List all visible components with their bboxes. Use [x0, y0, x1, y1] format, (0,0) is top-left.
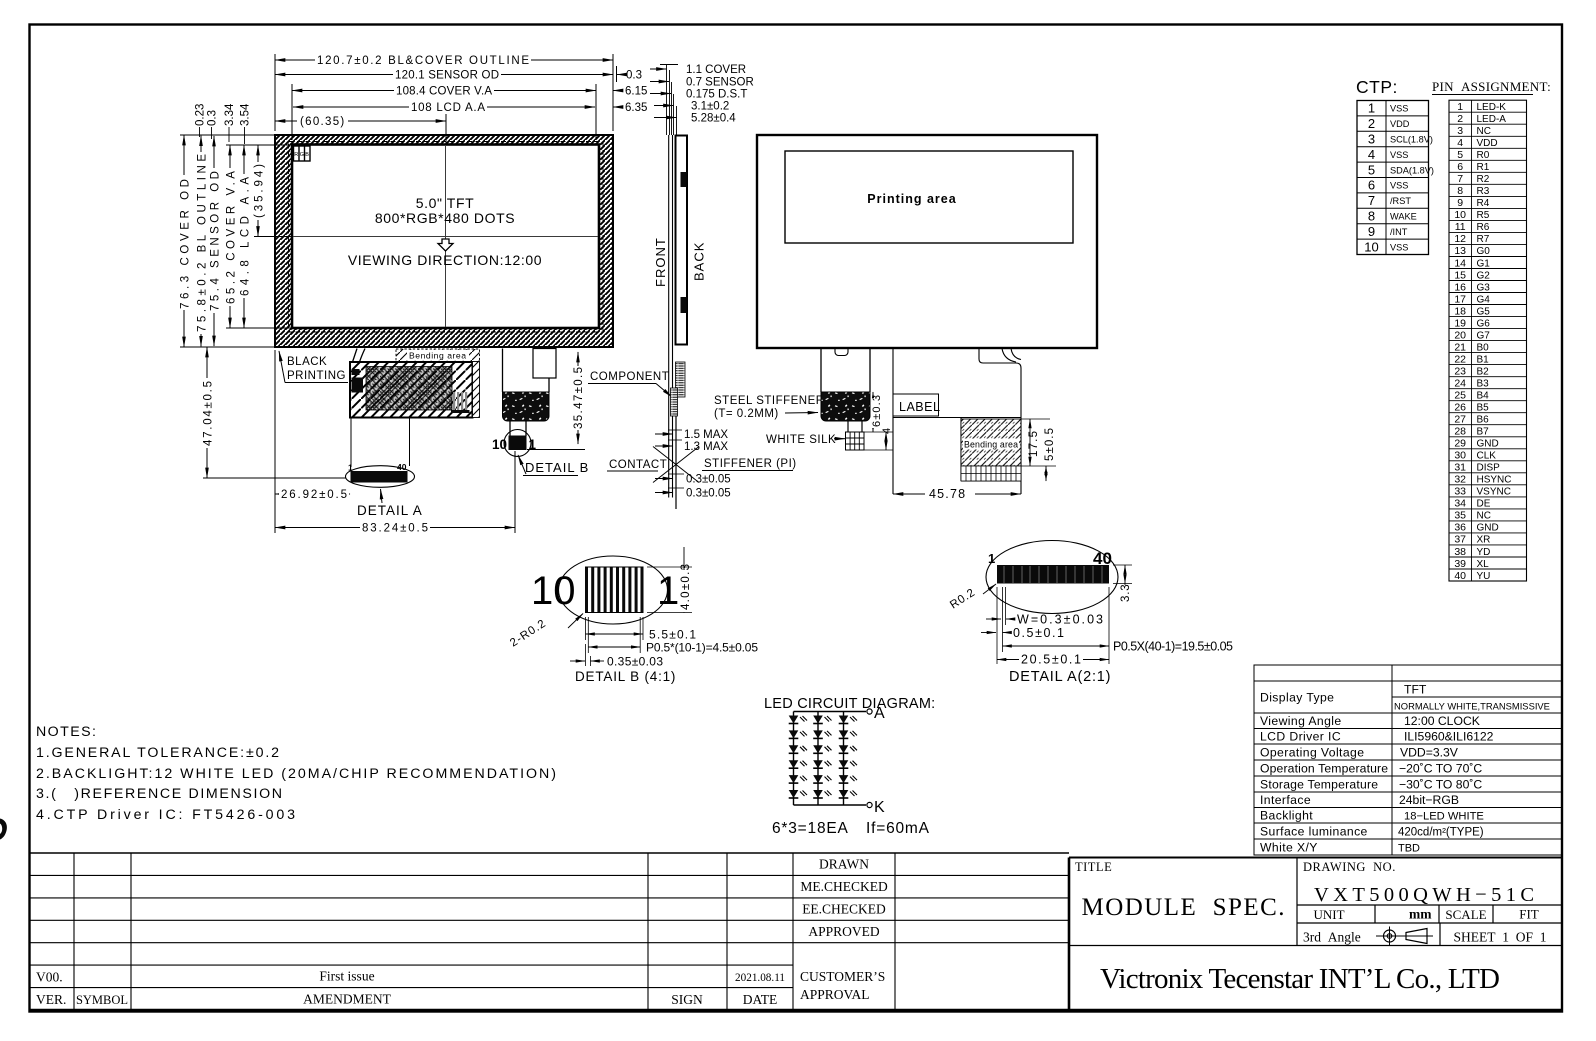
- svg-text:R1: R1: [1477, 162, 1490, 173]
- svg-text:Viewing Angle: Viewing Angle: [1260, 714, 1342, 728]
- svg-text:4.0±0.3: 4.0±0.3: [680, 564, 692, 610]
- svg-text:6*3=18EA: 6*3=18EA: [772, 820, 849, 837]
- svg-text:APPROVAL: APPROVAL: [800, 987, 870, 1002]
- svg-text:VSS: VSS: [1390, 242, 1408, 252]
- svg-text:17: 17: [1454, 293, 1466, 305]
- svg-text:6.35: 6.35: [625, 102, 647, 114]
- svg-text:NORMALLY WHITE,TRANSMISSIVE: NORMALLY WHITE,TRANSMISSIVE: [1394, 701, 1550, 712]
- svg-text:UNIT: UNIT: [1313, 907, 1344, 922]
- svg-text:20: 20: [1454, 329, 1466, 341]
- svg-text:33: 33: [1454, 486, 1466, 498]
- svg-text:83.24±0.5: 83.24±0.5: [362, 523, 428, 535]
- svg-text:(35.94): (35.94): [254, 164, 266, 218]
- svg-text:GND: GND: [1477, 523, 1499, 534]
- svg-text:1: 1: [657, 569, 679, 613]
- svg-text:CLK: CLK: [1477, 451, 1497, 462]
- svg-text:1.1 COVER: 1.1 COVER: [686, 64, 746, 76]
- svg-text:13: 13: [1454, 245, 1466, 257]
- svg-text:AMENDMENT: AMENDMENT: [303, 992, 391, 1007]
- svg-text:G5: G5: [1477, 306, 1491, 317]
- svg-text:R: R: [294, 152, 298, 158]
- svg-text:Victronix Tecenstar INT’L Co.,: Victronix Tecenstar INT’L Co., LTD: [1100, 963, 1500, 995]
- svg-text:24bit−RGB: 24bit−RGB: [1399, 793, 1459, 807]
- svg-text:R6: R6: [1477, 222, 1490, 233]
- svg-text:(T= 0.2MM): (T= 0.2MM): [714, 408, 779, 420]
- svg-text:ILI5960&ILI6122: ILI5960&ILI6122: [1404, 730, 1494, 744]
- svg-text:5.5±0.1: 5.5±0.1: [649, 628, 696, 642]
- svg-text:5: 5: [1368, 162, 1375, 177]
- svg-text:DETAIL B (4:1): DETAIL B (4:1): [575, 669, 676, 684]
- svg-text:35: 35: [1454, 510, 1466, 522]
- svg-text:5.0" TFT: 5.0" TFT: [416, 195, 475, 211]
- svg-text:YU: YU: [1477, 571, 1491, 582]
- svg-text:DETAIL A(2:1): DETAIL A(2:1): [1009, 669, 1111, 685]
- svg-text:2: 2: [1368, 116, 1375, 131]
- svg-text:P0.5X(40-1)=19.5±0.05: P0.5X(40-1)=19.5±0.05: [1113, 640, 1233, 654]
- svg-text:6±0.3: 6±0.3: [871, 395, 883, 427]
- svg-text:0.23: 0.23: [195, 104, 207, 126]
- svg-text:1: 1: [988, 551, 995, 566]
- svg-text:3.3: 3.3: [1120, 584, 1132, 602]
- svg-text:18: 18: [1454, 305, 1466, 317]
- svg-text:R0: R0: [1477, 150, 1490, 161]
- svg-text:8: 8: [1457, 185, 1463, 197]
- svg-text:Bending area: Bending area: [964, 440, 1018, 450]
- svg-text:21: 21: [1454, 341, 1466, 353]
- svg-text:10: 10: [492, 437, 507, 452]
- svg-text:DETAIL A: DETAIL A: [357, 503, 423, 518]
- svg-text:PIN ASSIGNMENT:: PIN ASSIGNMENT:: [1432, 79, 1551, 94]
- svg-text:25: 25: [1454, 390, 1466, 402]
- svg-text:3: 3: [1368, 132, 1375, 147]
- svg-text:1: 1: [1368, 101, 1375, 116]
- svg-text:120.1 SENSOR OD: 120.1 SENSOR OD: [395, 70, 499, 82]
- svg-text:4: 4: [1368, 147, 1375, 162]
- svg-text:0.3: 0.3: [207, 110, 219, 126]
- svg-text:22: 22: [1454, 353, 1466, 365]
- svg-text:5.28±0.4: 5.28±0.4: [691, 113, 736, 125]
- svg-text:G0: G0: [1477, 246, 1491, 257]
- svg-text:B4: B4: [1477, 391, 1490, 402]
- svg-text:9: 9: [1457, 197, 1463, 209]
- svg-text:SCL(1.8V): SCL(1.8V): [1390, 135, 1433, 145]
- svg-text:CUSTOMER’S: CUSTOMER’S: [800, 969, 885, 984]
- svg-text:19: 19: [1454, 317, 1466, 329]
- svg-text:45.78: 45.78: [929, 487, 966, 501]
- svg-text:/RST: /RST: [1390, 196, 1411, 206]
- svg-text:R4: R4: [1477, 198, 1490, 209]
- svg-text:ME.CHECKED: ME.CHECKED: [800, 879, 888, 894]
- svg-text:40: 40: [1454, 570, 1466, 582]
- svg-text:Operation Temperature: Operation Temperature: [1260, 762, 1388, 776]
- svg-text:R7: R7: [1477, 234, 1490, 245]
- svg-text:−30˚C TO 80˚C: −30˚C TO 80˚C: [1399, 778, 1482, 792]
- svg-text:FRONT: FRONT: [653, 237, 668, 287]
- svg-text:37: 37: [1454, 534, 1466, 546]
- svg-text:26: 26: [1454, 402, 1466, 414]
- svg-text:WHITE SILK: WHITE SILK: [766, 434, 836, 446]
- svg-text:47.04±0.5: 47.04±0.5: [203, 381, 215, 446]
- svg-text:FIT: FIT: [1519, 907, 1539, 922]
- svg-text:3.1±0.2: 3.1±0.2: [691, 101, 729, 113]
- svg-text:14: 14: [1454, 257, 1466, 269]
- svg-text:40: 40: [1093, 549, 1112, 568]
- svg-text:APPROVED: APPROVED: [808, 924, 880, 939]
- svg-text:15: 15: [1454, 269, 1466, 281]
- svg-text:TBD: TBD: [1398, 843, 1420, 855]
- svg-text:COMPONENT: COMPONENT: [590, 371, 669, 383]
- svg-text:DETAIL B: DETAIL B: [525, 460, 589, 475]
- svg-text:65.2 COVER V.A: 65.2 COVER V.A: [226, 171, 238, 304]
- svg-text:/INT: /INT: [1390, 227, 1408, 237]
- svg-text:SHEET 1 OF 1: SHEET 1 OF 1: [1453, 930, 1546, 945]
- svg-text:NC: NC: [1477, 126, 1491, 137]
- svg-text:BACK: BACK: [692, 242, 707, 281]
- svg-text:G6: G6: [1477, 318, 1491, 329]
- svg-text:2021.08.11: 2021.08.11: [735, 972, 785, 984]
- svg-text:TFT: TFT: [1404, 683, 1427, 697]
- svg-text:8: 8: [1368, 209, 1375, 224]
- svg-text:LED-K: LED-K: [1477, 102, 1507, 113]
- svg-text:36: 36: [1454, 522, 1466, 534]
- svg-text:VSYNC: VSYNC: [1477, 487, 1511, 498]
- svg-text:G7: G7: [1477, 330, 1491, 341]
- svg-text:LED-A: LED-A: [1477, 114, 1507, 125]
- svg-text:Backlight: Backlight: [1260, 809, 1313, 823]
- svg-text:SYMBOL: SYMBOL: [76, 993, 128, 1007]
- svg-text:6: 6: [1368, 178, 1375, 193]
- svg-text:7: 7: [1368, 193, 1375, 208]
- svg-text:SIGN: SIGN: [671, 992, 703, 1007]
- svg-text:VXT500QWH−51C: VXT500QWH−51C: [1314, 884, 1534, 906]
- svg-text:B1: B1: [1477, 354, 1490, 365]
- svg-text:2: 2: [1457, 113, 1463, 125]
- svg-text:4: 4: [1457, 137, 1463, 149]
- svg-text:MODULE SPEC.: MODULE SPEC.: [1082, 894, 1285, 921]
- svg-text:TITLE: TITLE: [1075, 860, 1112, 874]
- svg-text:B7: B7: [1477, 427, 1490, 438]
- svg-text:6: 6: [1457, 161, 1463, 173]
- svg-text:10: 10: [1454, 209, 1466, 221]
- svg-text:17.5: 17.5: [1028, 431, 1040, 457]
- svg-text:CONTACT: CONTACT: [609, 459, 667, 471]
- svg-text:39: 39: [1454, 558, 1466, 570]
- svg-text:31: 31: [1454, 462, 1466, 474]
- svg-text:108.4 COVER V.A: 108.4 COVER V.A: [396, 86, 492, 98]
- svg-text:3rd Angle: 3rd Angle: [1303, 930, 1361, 945]
- svg-text:SCALE: SCALE: [1445, 907, 1486, 922]
- svg-text:12:00 CLOCK: 12:00 CLOCK: [1404, 714, 1480, 728]
- svg-text:PRINTING: PRINTING: [287, 370, 346, 382]
- svg-text:mm: mm: [1409, 907, 1432, 922]
- svg-text:LABEL: LABEL: [899, 400, 940, 414]
- svg-text:Surface luminance: Surface luminance: [1260, 825, 1368, 839]
- svg-text:A: A: [874, 705, 885, 722]
- svg-text:1: 1: [348, 463, 353, 473]
- svg-text:10: 10: [1364, 239, 1378, 254]
- svg-text:White X/Y: White X/Y: [1260, 841, 1318, 855]
- svg-text:12: 12: [1454, 233, 1466, 245]
- svg-text:20.5±0.1: 20.5±0.1: [1021, 653, 1081, 667]
- svg-text:4: 4: [881, 428, 893, 434]
- svg-text:R5: R5: [1477, 210, 1490, 221]
- svg-text:B6: B6: [1477, 415, 1490, 426]
- svg-text:G: G: [300, 152, 304, 158]
- svg-text:GND: GND: [1477, 439, 1499, 450]
- svg-text:−20˚C TO 70˚C: −20˚C TO 70˚C: [1399, 762, 1482, 776]
- svg-text:Bending area: Bending area: [409, 350, 466, 360]
- svg-text:W=0.3±0.03: W=0.3±0.03: [1017, 613, 1103, 627]
- svg-text:16: 16: [1454, 281, 1466, 293]
- svg-text:75.4 SENSOR OD: 75.4 SENSOR OD: [210, 171, 222, 311]
- svg-text:B: B: [305, 152, 309, 158]
- svg-text:G4: G4: [1477, 294, 1491, 305]
- svg-text:11: 11: [1455, 221, 1466, 233]
- svg-text:Display Type: Display Type: [1260, 691, 1334, 705]
- svg-text:B5: B5: [1477, 403, 1490, 414]
- svg-text:SDA(1.8V): SDA(1.8V): [1390, 165, 1434, 175]
- svg-text:0.35±0.03: 0.35±0.03: [607, 655, 663, 669]
- svg-text:18−LED WHITE: 18−LED WHITE: [1404, 811, 1484, 823]
- svg-text:Operating Voltage: Operating Voltage: [1260, 746, 1364, 760]
- svg-text:120.7±0.2 BL&COVER OUTLINE: 120.7±0.2 BL&COVER OUTLINE: [317, 55, 529, 67]
- svg-text:DISP: DISP: [1477, 463, 1501, 474]
- svg-text:0.3: 0.3: [626, 70, 642, 82]
- svg-text:3.34: 3.34: [224, 103, 236, 126]
- svg-text:HSYNC: HSYNC: [1477, 475, 1512, 486]
- svg-text:800*RGB*480 DOTS: 800*RGB*480 DOTS: [375, 210, 515, 226]
- svg-text:1: 1: [1457, 101, 1463, 113]
- svg-text:34: 34: [1454, 498, 1466, 510]
- svg-text:V00.: V00.: [36, 970, 63, 985]
- svg-text:NC: NC: [1477, 511, 1491, 522]
- svg-text:Printing area: Printing area: [867, 192, 956, 206]
- svg-text:WAKE: WAKE: [1390, 212, 1417, 222]
- svg-text:38: 38: [1454, 546, 1466, 558]
- svg-text:(60.35): (60.35): [300, 116, 346, 128]
- svg-text:VER.: VER.: [36, 992, 66, 1007]
- svg-text:B0: B0: [1477, 342, 1490, 353]
- svg-text:VSS: VSS: [1390, 181, 1408, 191]
- svg-text:Interface: Interface: [1260, 793, 1311, 807]
- svg-text:29: 29: [1454, 438, 1466, 450]
- svg-text:If=60mA: If=60mA: [866, 820, 930, 837]
- svg-text:P0.5*(10-1)=4.5±0.05: P0.5*(10-1)=4.5±0.05: [646, 641, 758, 655]
- svg-text:0.175 D.S.T: 0.175 D.S.T: [686, 89, 747, 101]
- svg-text:5±0.5: 5±0.5: [1044, 428, 1056, 461]
- svg-text:NOTES:: NOTES:: [36, 724, 96, 740]
- svg-text:30: 30: [1454, 450, 1466, 462]
- svg-text:B2: B2: [1477, 366, 1490, 377]
- svg-text:LED CIRCUIT DIAGRAM:: LED CIRCUIT DIAGRAM:: [764, 696, 936, 712]
- svg-text:DE: DE: [1477, 499, 1491, 510]
- svg-text:CTP:: CTP:: [1356, 77, 1398, 97]
- svg-text:VSS: VSS: [1390, 104, 1408, 114]
- svg-text:28: 28: [1454, 426, 1466, 438]
- svg-text:3: 3: [1457, 125, 1463, 137]
- svg-text:0.3±0.05: 0.3±0.05: [686, 488, 731, 500]
- svg-text:6.15: 6.15: [625, 86, 647, 98]
- svg-text:DATE: DATE: [743, 992, 778, 1007]
- svg-text:27: 27: [1454, 414, 1466, 426]
- svg-text:VDD: VDD: [1390, 119, 1410, 129]
- svg-text:40: 40: [397, 462, 407, 472]
- svg-text:23: 23: [1454, 365, 1466, 377]
- svg-text:LCD Driver IC: LCD Driver IC: [1260, 730, 1341, 744]
- svg-text:DRAWN: DRAWN: [819, 857, 869, 872]
- svg-text:7: 7: [1457, 173, 1463, 185]
- svg-text:DRAWING NO.: DRAWING NO.: [1303, 860, 1396, 874]
- svg-text:G1: G1: [1477, 258, 1491, 269]
- svg-text:0.7 SENSOR: 0.7 SENSOR: [686, 77, 754, 89]
- svg-text:0.3±0.05: 0.3±0.05: [686, 474, 731, 486]
- svg-text:3.54: 3.54: [240, 103, 252, 126]
- svg-text:G3: G3: [1477, 282, 1491, 293]
- svg-text:YD: YD: [1477, 547, 1491, 558]
- svg-text:420cd/m²(TYPE): 420cd/m²(TYPE): [1398, 827, 1484, 839]
- svg-text:26.92±0.5: 26.92±0.5: [281, 489, 347, 501]
- svg-text:24: 24: [1454, 378, 1466, 390]
- svg-text:First issue: First issue: [319, 969, 374, 984]
- svg-text:5: 5: [1457, 149, 1463, 161]
- svg-text:R2: R2: [1477, 174, 1490, 185]
- svg-text:1.5 MAX: 1.5 MAX: [684, 429, 728, 441]
- svg-text:VDD=3.3V: VDD=3.3V: [1400, 746, 1459, 760]
- svg-text:1.3 MAX: 1.3 MAX: [684, 441, 728, 453]
- svg-text:32: 32: [1454, 474, 1466, 486]
- svg-text:EE.CHECKED: EE.CHECKED: [802, 902, 886, 917]
- svg-text:Storage Temperature: Storage Temperature: [1260, 778, 1378, 792]
- svg-text:35.47±0.5: 35.47±0.5: [573, 367, 585, 429]
- svg-text:G2: G2: [1477, 270, 1491, 281]
- svg-text:B3: B3: [1477, 379, 1490, 390]
- svg-text:108 LCD A.A: 108 LCD A.A: [411, 102, 485, 114]
- svg-text:STIFFENER (PI): STIFFENER (PI): [704, 458, 797, 470]
- svg-text:VDD: VDD: [1477, 138, 1498, 149]
- svg-text:1.GENERAL TOLERANCE:±0.2: 1.GENERAL TOLERANCE:±0.2: [36, 745, 279, 761]
- svg-text:VIEWING DIRECTION:12:00: VIEWING DIRECTION:12:00: [348, 252, 542, 268]
- svg-text:0.5±0.1: 0.5±0.1: [1013, 626, 1064, 640]
- svg-text:K: K: [874, 799, 885, 816]
- svg-text:R3: R3: [1477, 186, 1490, 197]
- svg-text:XL: XL: [1477, 559, 1490, 570]
- svg-text:STEEL STIFFENER: STEEL STIFFENER: [714, 395, 825, 407]
- svg-text:BLACK: BLACK: [287, 356, 327, 368]
- svg-text:10: 10: [531, 569, 576, 613]
- svg-text:9: 9: [1368, 224, 1375, 239]
- svg-text:XR: XR: [1477, 535, 1491, 546]
- svg-text:VSS: VSS: [1390, 150, 1408, 160]
